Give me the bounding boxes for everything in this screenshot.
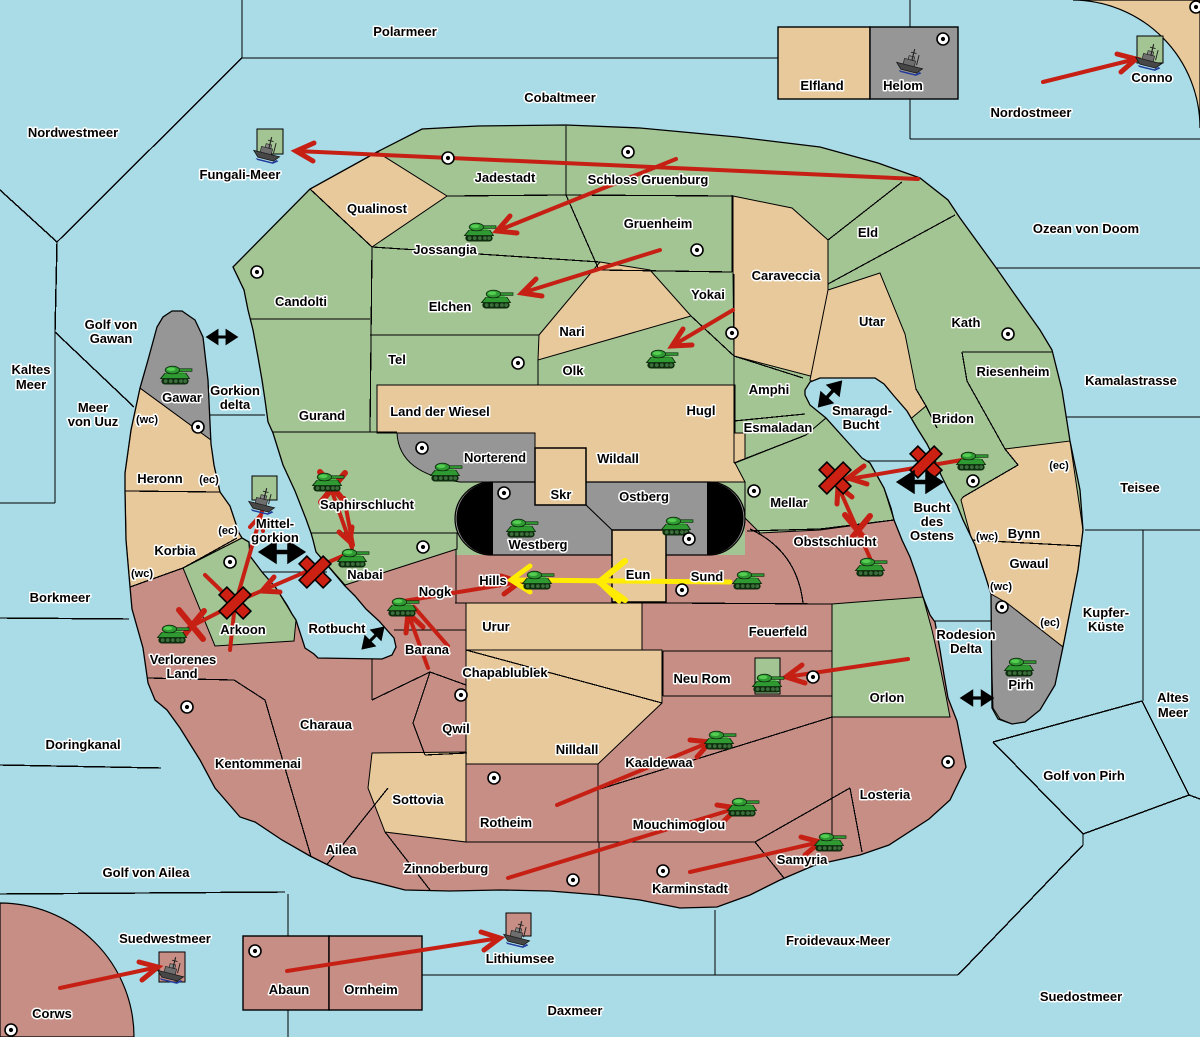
svg-text:Obstschlucht: Obstschlucht: [793, 534, 877, 549]
svg-text:Nordwestmeer: Nordwestmeer: [28, 125, 118, 140]
svg-text:Saphirschlucht: Saphirschlucht: [320, 497, 415, 512]
svg-text:Daxmeer: Daxmeer: [548, 1003, 603, 1018]
svg-text:Nilldall: Nilldall: [556, 742, 599, 757]
svg-text:Eun: Eun: [626, 567, 651, 582]
svg-text:(wc): (wc): [136, 414, 158, 426]
svg-text:Gorkion: Gorkion: [210, 383, 260, 398]
svg-text:des: des: [921, 514, 943, 529]
svg-text:Conno: Conno: [1131, 70, 1172, 85]
svg-text:Hugl: Hugl: [687, 403, 716, 418]
svg-text:Neu Rom: Neu Rom: [673, 671, 730, 686]
svg-text:Kupfer-: Kupfer-: [1083, 605, 1129, 620]
svg-text:(ec): (ec): [218, 525, 238, 537]
svg-text:Nordostmeer: Nordostmeer: [991, 105, 1072, 120]
svg-text:Fungali-Meer: Fungali-Meer: [200, 167, 281, 182]
svg-text:Hills: Hills: [479, 573, 506, 588]
svg-text:Sund: Sund: [691, 569, 724, 584]
svg-text:Mittel-: Mittel-: [256, 516, 294, 531]
svg-text:Urur: Urur: [482, 619, 509, 634]
svg-text:Olk: Olk: [563, 363, 585, 378]
svg-text:Rodesion: Rodesion: [936, 627, 995, 642]
svg-text:Polarmeer: Polarmeer: [373, 24, 437, 39]
svg-text:Ostens: Ostens: [910, 528, 954, 543]
svg-text:(ec): (ec): [1049, 460, 1069, 472]
svg-text:Elchen: Elchen: [429, 299, 472, 314]
svg-text:Kaltes: Kaltes: [11, 362, 50, 377]
svg-text:Elfland: Elfland: [800, 78, 843, 93]
svg-text:Meer: Meer: [78, 400, 108, 415]
svg-text:delta: delta: [220, 397, 251, 412]
svg-text:Gwaul: Gwaul: [1009, 556, 1048, 571]
svg-text:Losteria: Losteria: [860, 787, 911, 802]
svg-text:Smaragd-: Smaragd-: [832, 403, 892, 418]
svg-text:(wc): (wc): [976, 531, 998, 543]
svg-text:Borkmeer: Borkmeer: [30, 590, 91, 605]
svg-text:Gawan: Gawan: [90, 331, 133, 346]
svg-text:(wc): (wc): [990, 581, 1012, 593]
svg-text:Nabai: Nabai: [347, 567, 382, 582]
svg-text:Ailea: Ailea: [325, 842, 357, 857]
svg-text:Feuerfeld: Feuerfeld: [749, 624, 808, 639]
svg-text:Tel: Tel: [388, 352, 406, 367]
svg-text:Nari: Nari: [559, 324, 584, 339]
svg-text:Qualinost: Qualinost: [347, 201, 408, 216]
svg-text:Ornheim: Ornheim: [344, 982, 397, 997]
svg-text:Meer: Meer: [16, 377, 46, 392]
svg-text:Suedwestmeer: Suedwestmeer: [119, 931, 211, 946]
svg-text:Amphi: Amphi: [749, 382, 789, 397]
svg-text:Zinnoberburg: Zinnoberburg: [404, 861, 489, 876]
svg-text:Kentommenai: Kentommenai: [215, 756, 301, 771]
svg-text:Rotheim: Rotheim: [480, 815, 532, 830]
svg-text:Jossangia: Jossangia: [413, 242, 477, 257]
svg-text:Sottovia: Sottovia: [392, 792, 444, 807]
svg-text:Ostberg: Ostberg: [619, 489, 669, 504]
svg-text:Riesenheim: Riesenheim: [977, 364, 1050, 379]
svg-text:Nogk: Nogk: [419, 584, 452, 599]
svg-text:Suedostmeer: Suedostmeer: [1040, 989, 1122, 1004]
svg-text:Candolti: Candolti: [275, 294, 327, 309]
svg-text:Kaaldewaa: Kaaldewaa: [625, 755, 693, 770]
svg-text:Bridon: Bridon: [932, 411, 974, 426]
svg-text:Barana: Barana: [405, 642, 450, 657]
svg-text:Arkoon: Arkoon: [220, 622, 266, 637]
svg-text:Doringkanal: Doringkanal: [45, 737, 120, 752]
svg-text:Eld: Eld: [858, 225, 878, 240]
svg-text:Qwil: Qwil: [442, 721, 469, 736]
svg-text:(wc): (wc): [131, 568, 153, 580]
svg-text:Wildall: Wildall: [597, 451, 639, 466]
svg-text:Westberg: Westberg: [509, 537, 568, 552]
svg-text:Meer: Meer: [1158, 705, 1188, 720]
svg-text:Yokai: Yokai: [691, 287, 725, 302]
svg-text:Kamalastrasse: Kamalastrasse: [1085, 373, 1177, 388]
svg-text:Helom: Helom: [883, 78, 923, 93]
svg-text:Jadestadt: Jadestadt: [475, 170, 536, 185]
svg-text:Bucht: Bucht: [914, 500, 952, 515]
svg-text:Bynn: Bynn: [1008, 526, 1041, 541]
svg-text:Mouchimoglou: Mouchimoglou: [633, 817, 725, 832]
svg-text:Skr: Skr: [551, 487, 572, 502]
svg-text:(ec): (ec): [1040, 617, 1060, 629]
svg-text:Bucht: Bucht: [843, 417, 881, 432]
svg-text:Schloss Gruenburg: Schloss Gruenburg: [588, 172, 709, 187]
svg-text:Golf von: Golf von: [85, 317, 138, 332]
svg-text:Cobaltmeer: Cobaltmeer: [524, 90, 596, 105]
svg-text:Gruenheim: Gruenheim: [624, 216, 693, 231]
svg-text:Golf von Pirh: Golf von Pirh: [1043, 768, 1125, 783]
svg-text:Altes: Altes: [1157, 690, 1189, 705]
svg-text:Land der Wiesel: Land der Wiesel: [390, 404, 490, 419]
svg-text:Heronn: Heronn: [137, 471, 183, 486]
svg-text:Norterend: Norterend: [464, 450, 526, 465]
svg-text:Golf von Ailea: Golf von Ailea: [103, 865, 191, 880]
svg-text:Samyria: Samyria: [777, 852, 828, 867]
svg-text:Rotbucht: Rotbucht: [308, 621, 366, 636]
svg-text:Land: Land: [166, 666, 197, 681]
svg-text:Utar: Utar: [859, 314, 885, 329]
svg-text:Gurand: Gurand: [299, 408, 345, 423]
svg-text:von Uuz: von Uuz: [68, 414, 119, 429]
svg-text:Mellar: Mellar: [770, 495, 808, 510]
svg-text:Abaun: Abaun: [269, 982, 310, 997]
svg-text:Esmaladan: Esmaladan: [744, 420, 813, 435]
svg-text:Küste: Küste: [1088, 619, 1124, 634]
svg-text:Froidevaux-Meer: Froidevaux-Meer: [786, 933, 890, 948]
svg-text:Pirh: Pirh: [1008, 677, 1033, 692]
svg-text:Caraveccia: Caraveccia: [752, 268, 821, 283]
svg-text:Delta: Delta: [950, 641, 983, 656]
svg-text:Kath: Kath: [952, 315, 981, 330]
svg-text:Korbia: Korbia: [154, 543, 196, 558]
svg-text:Gawar: Gawar: [162, 390, 202, 405]
svg-text:Orlon: Orlon: [870, 690, 905, 705]
svg-text:Karminstadt: Karminstadt: [652, 881, 729, 896]
svg-text:gorkion: gorkion: [251, 530, 299, 545]
svg-text:(ec): (ec): [199, 474, 219, 486]
svg-text:Chapablublek: Chapablublek: [462, 665, 548, 680]
svg-text:Teisee: Teisee: [1120, 480, 1160, 495]
svg-text:Corws: Corws: [32, 1006, 72, 1021]
svg-text:Charaua: Charaua: [300, 717, 353, 732]
svg-text:Verlorenes: Verlorenes: [150, 652, 217, 667]
svg-text:Ozean von Doom: Ozean von Doom: [1033, 221, 1139, 236]
svg-text:Lithiumsee: Lithiumsee: [486, 951, 555, 966]
